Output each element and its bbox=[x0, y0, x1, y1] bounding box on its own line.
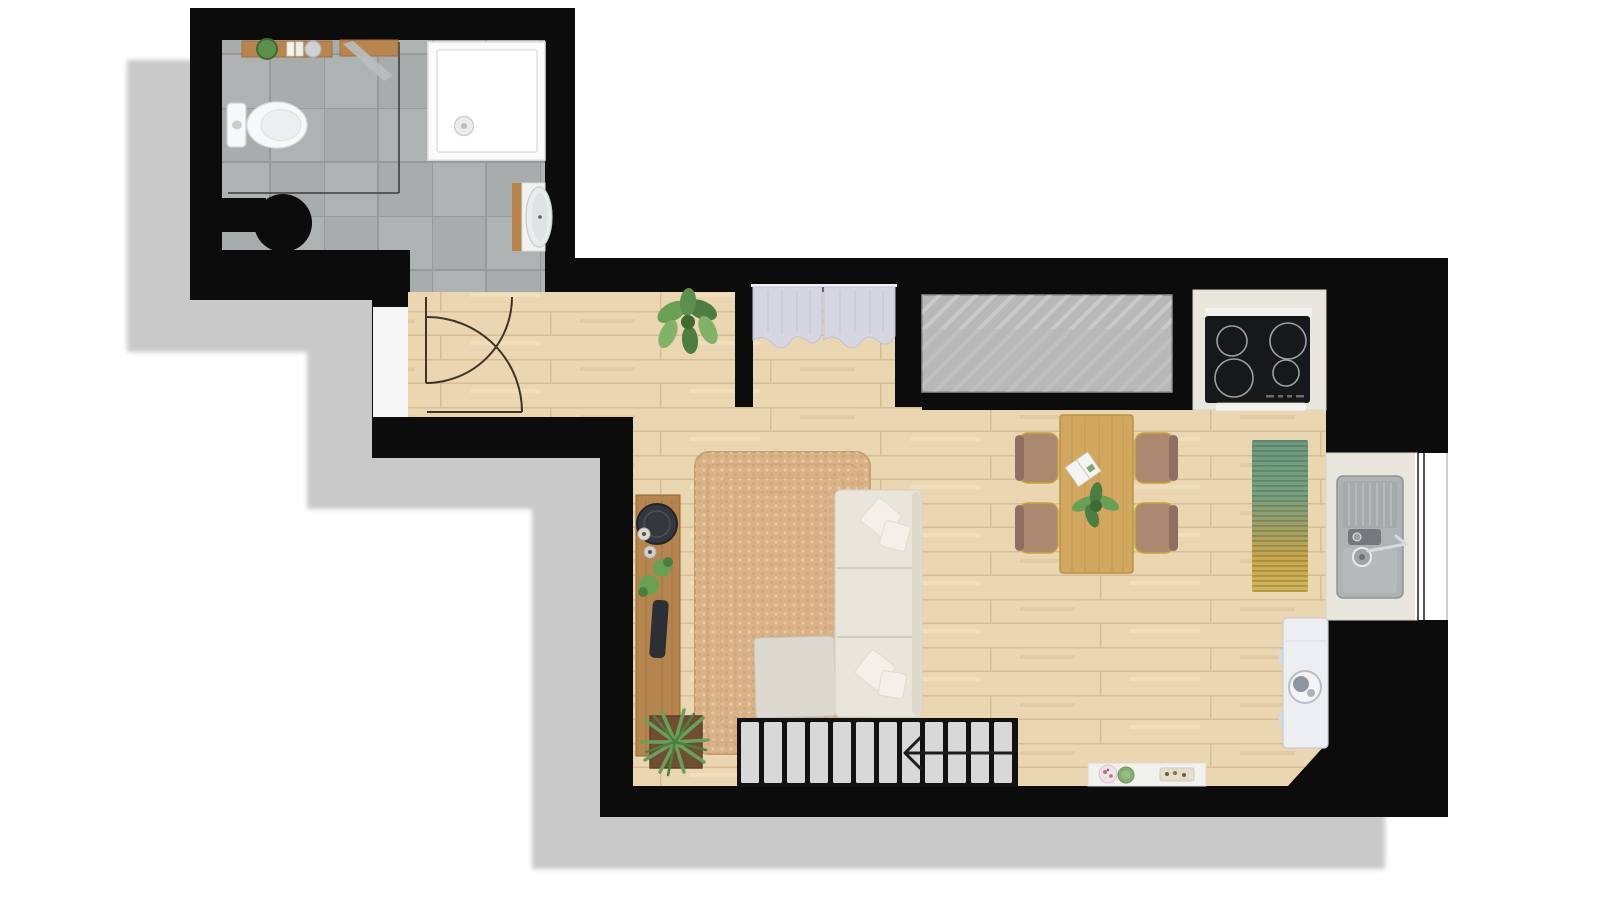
kitchen-sink bbox=[1337, 476, 1406, 598]
floor-plan-canvas bbox=[0, 0, 1600, 900]
wall-column bbox=[735, 258, 753, 407]
washbasin-vanity bbox=[512, 183, 552, 251]
staircase bbox=[737, 718, 1018, 787]
shelf-plant bbox=[257, 39, 277, 59]
entry-door-panel bbox=[373, 307, 408, 417]
hallway-tile bbox=[410, 250, 545, 296]
dining-chair bbox=[1015, 433, 1058, 483]
water-heater bbox=[1279, 618, 1328, 748]
kitchen-window bbox=[1415, 453, 1448, 620]
runner-rug bbox=[1252, 440, 1308, 592]
toilet bbox=[227, 102, 307, 148]
kitchen-sink-counter bbox=[1326, 453, 1417, 620]
shelf-bowl bbox=[305, 41, 321, 57]
potted-plant-floor bbox=[642, 710, 708, 775]
shower-tray bbox=[428, 42, 545, 160]
kitchen-counter bbox=[1193, 290, 1326, 411]
void-hatched-panel bbox=[922, 295, 1172, 392]
bathroom-shelf bbox=[242, 39, 332, 59]
dining-chair bbox=[1135, 433, 1178, 483]
wall-shelf-dishes bbox=[1088, 763, 1206, 786]
dining-chair bbox=[1135, 503, 1178, 553]
floor-plan bbox=[0, 0, 1600, 900]
wall-column bbox=[895, 258, 922, 407]
induction-cooktop bbox=[1205, 316, 1310, 403]
wardrobe-curtain-niche bbox=[751, 284, 897, 348]
shelf-canister bbox=[287, 42, 294, 56]
cooktop-handle bbox=[1215, 403, 1307, 411]
shelf-canister bbox=[296, 42, 303, 56]
dining-chair bbox=[1015, 503, 1058, 553]
dish bbox=[1099, 765, 1117, 783]
ottoman bbox=[754, 636, 836, 718]
